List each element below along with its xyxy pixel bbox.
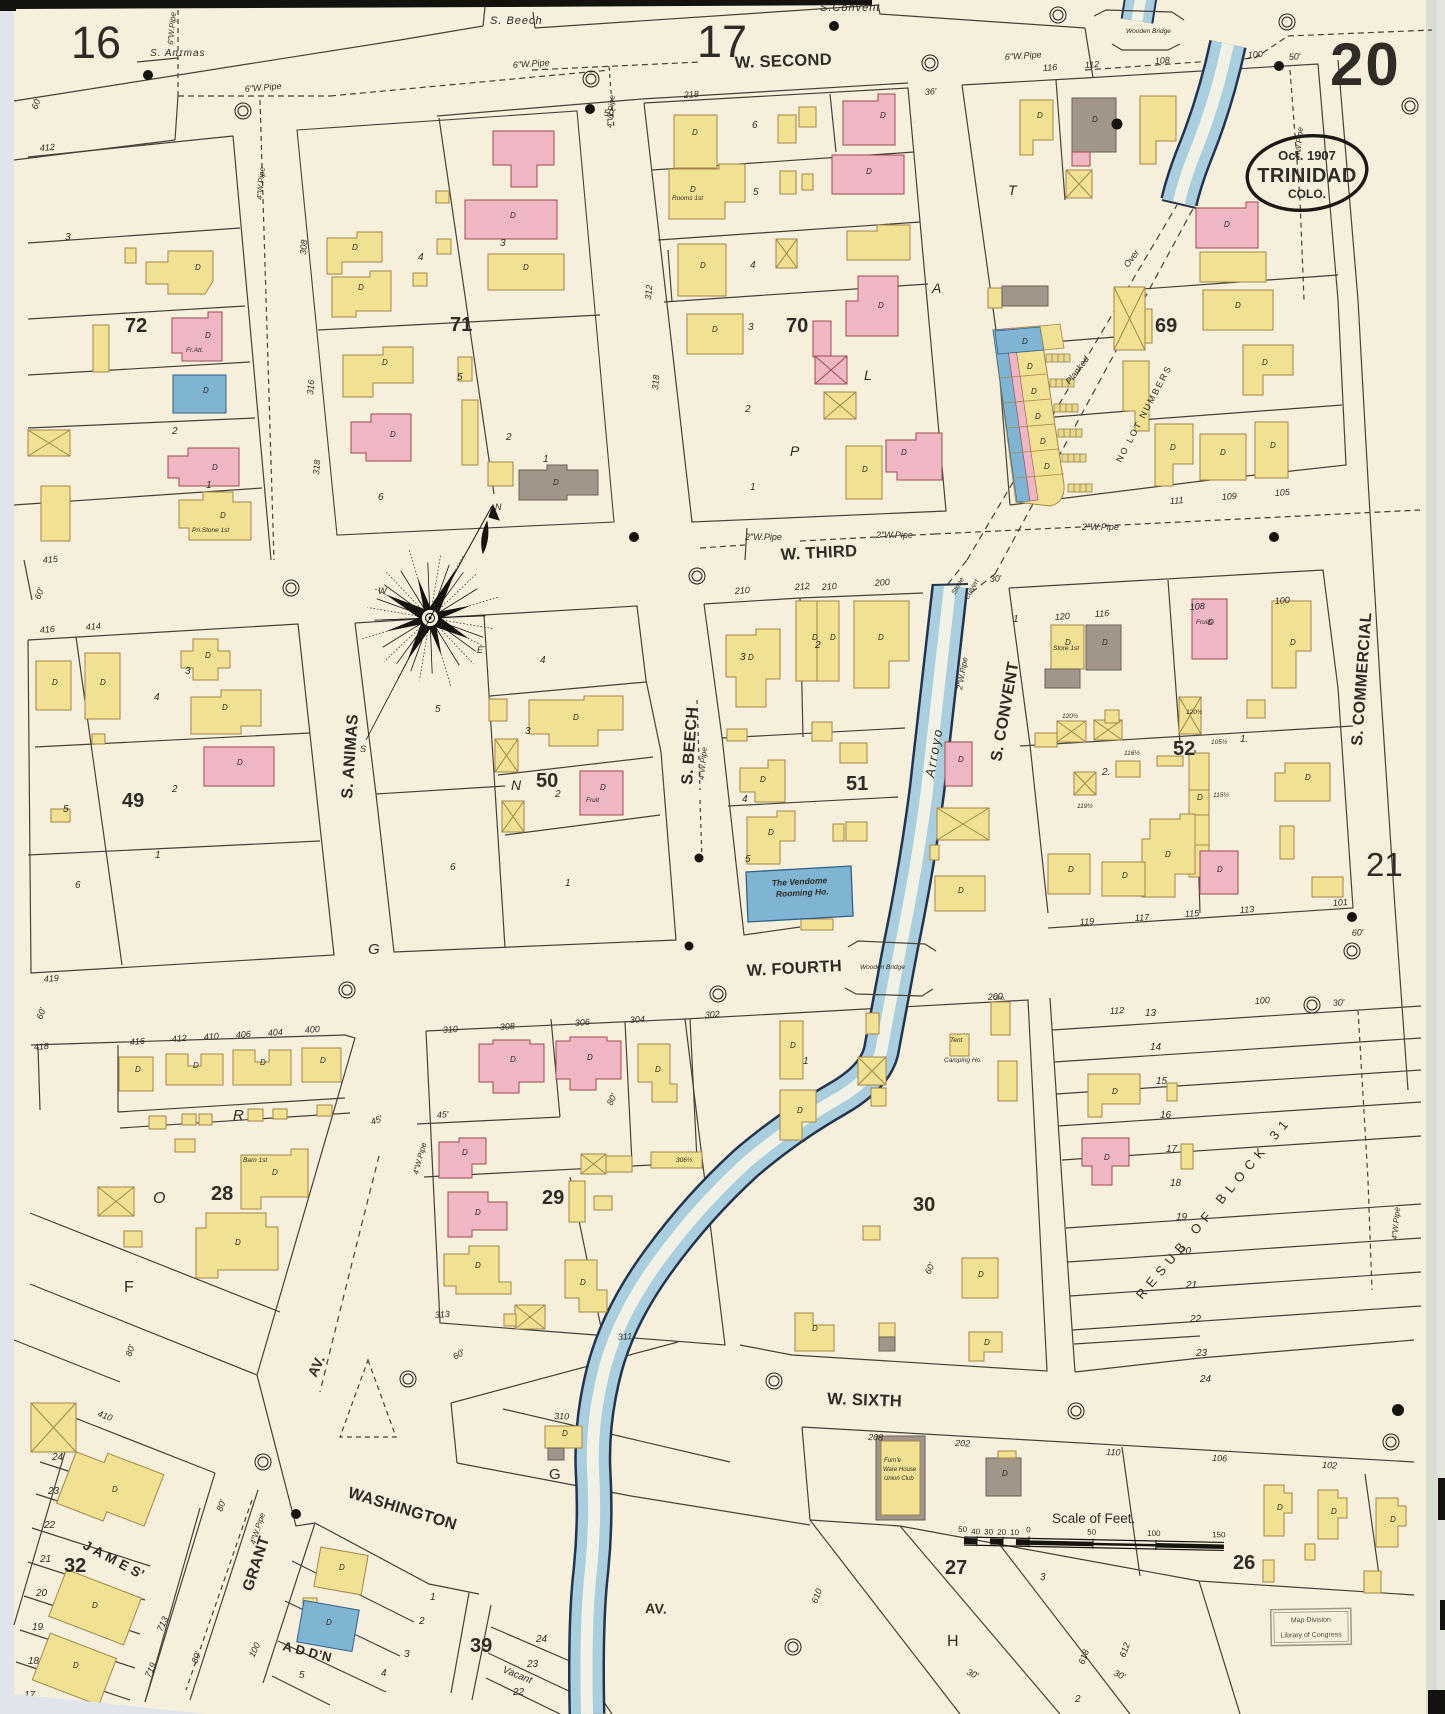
svg-text:71: 71 (450, 314, 472, 336)
svg-text:416: 416 (39, 624, 55, 635)
svg-text:412: 412 (171, 1033, 187, 1044)
svg-text:AV.: AV. (645, 1600, 667, 1617)
svg-text:105½: 105½ (1211, 738, 1228, 746)
svg-text:1: 1 (543, 454, 549, 465)
svg-text:D: D (573, 713, 579, 722)
svg-text:16: 16 (71, 17, 121, 68)
svg-text:D: D (1270, 441, 1276, 450)
svg-text:D: D (1290, 638, 1296, 647)
svg-text:2: 2 (418, 1616, 425, 1627)
svg-text:Wooden Bridge: Wooden Bridge (1126, 28, 1171, 35)
svg-text:D: D (112, 1485, 118, 1494)
svg-text:D: D (52, 678, 58, 687)
svg-text:200: 200 (873, 577, 890, 588)
svg-text:2: 2 (744, 404, 751, 415)
svg-text:4: 4 (418, 252, 424, 263)
svg-text:D: D (1092, 115, 1098, 124)
svg-text:32: 32 (64, 1555, 86, 1577)
svg-text:D: D (1068, 865, 1074, 874)
svg-text:19: 19 (1176, 1212, 1188, 1223)
svg-text:24: 24 (1199, 1374, 1212, 1385)
svg-text:72: 72 (125, 315, 147, 337)
svg-text:D: D (326, 1618, 332, 1627)
svg-text:1: 1 (155, 850, 161, 861)
svg-text:Scale of Feet.: Scale of Feet. (1052, 1511, 1135, 1526)
svg-text:D: D (984, 1338, 990, 1347)
svg-text:210: 210 (820, 581, 837, 592)
svg-text:D: D (100, 678, 106, 687)
svg-text:TRINIDAD: TRINIDAD (1257, 165, 1357, 187)
svg-text:116½: 116½ (1124, 749, 1140, 757)
svg-text:22: 22 (1189, 1314, 1202, 1325)
svg-text:4: 4 (154, 692, 160, 703)
svg-text:D: D (475, 1208, 481, 1217)
svg-text:Fr.Att.: Fr.Att. (186, 347, 204, 354)
svg-text:108: 108 (1189, 601, 1205, 612)
svg-text:D: D (205, 331, 211, 340)
svg-text:208: 208 (867, 1432, 883, 1443)
svg-text:1: 1 (430, 1592, 436, 1603)
svg-text:308: 308 (298, 239, 309, 255)
svg-text:6: 6 (378, 492, 384, 503)
svg-text:D: D (1165, 850, 1171, 859)
svg-text:23: 23 (1195, 1348, 1208, 1359)
svg-text:Barn 1st: Barn 1st (243, 1157, 268, 1164)
svg-text:N: N (495, 502, 502, 512)
svg-text:D: D (812, 633, 818, 642)
svg-text:Map Division: Map Division (1291, 1617, 1331, 1625)
svg-text:Furn’e: Furn’e (884, 1458, 902, 1464)
svg-text:20: 20 (1330, 31, 1401, 98)
svg-text:115½: 115½ (1213, 791, 1229, 799)
svg-text:D: D (1044, 462, 1050, 471)
svg-text:304: 304 (629, 1014, 645, 1025)
svg-text:18: 18 (28, 1656, 40, 1667)
svg-text:D: D (700, 261, 706, 270)
svg-text:112: 112 (1109, 1005, 1124, 1016)
svg-text:D: D (382, 358, 388, 367)
svg-text:F: F (124, 1279, 134, 1296)
svg-text:D: D (812, 1324, 818, 1333)
svg-text:Library of Congress: Library of Congress (1281, 1631, 1343, 1639)
svg-text:1: 1 (1013, 614, 1019, 625)
svg-text:70: 70 (786, 315, 808, 337)
svg-text:D: D (1331, 1507, 1337, 1516)
svg-text:116: 116 (1042, 62, 1057, 73)
svg-text:120½: 120½ (1062, 712, 1079, 720)
svg-text:5: 5 (745, 854, 751, 865)
svg-text:D: D (220, 511, 226, 520)
svg-text:D: D (878, 301, 884, 310)
svg-text:36′: 36′ (924, 86, 937, 97)
svg-text:D: D (1235, 301, 1241, 310)
svg-text:D: D (1027, 362, 1033, 371)
svg-text:50: 50 (958, 1525, 968, 1534)
svg-text:306: 306 (574, 1017, 590, 1028)
svg-text:3: 3 (748, 322, 754, 333)
svg-text:L: L (864, 367, 872, 383)
svg-text:H: H (947, 1633, 959, 1650)
svg-text:17: 17 (1166, 1144, 1178, 1155)
svg-text:R: R (233, 1107, 244, 1124)
svg-text:120½: 120½ (1186, 708, 1203, 716)
svg-text:D: D (830, 633, 836, 642)
svg-text:D: D (1065, 638, 1071, 647)
svg-text:116: 116 (1094, 608, 1109, 619)
svg-text:D: D (760, 775, 766, 784)
svg-text:101: 101 (1332, 897, 1348, 908)
svg-text:2″W.Pipe: 2″W.Pipe (1081, 522, 1119, 532)
svg-text:21: 21 (1185, 1280, 1197, 1291)
svg-text:D: D (1122, 871, 1128, 880)
svg-text:316: 316 (305, 379, 316, 395)
svg-text:1: 1 (750, 482, 756, 493)
svg-text:N: N (511, 777, 522, 793)
svg-text:419: 419 (43, 973, 59, 984)
svg-text:49: 49 (122, 790, 144, 812)
svg-text:106: 106 (1212, 1453, 1227, 1464)
svg-text:Gro.: Gro. (993, 995, 1006, 1002)
svg-text:23: 23 (526, 1659, 539, 1670)
svg-text:D: D (260, 1058, 266, 1067)
svg-text:50: 50 (1087, 1528, 1097, 1537)
svg-text:5: 5 (753, 187, 759, 198)
svg-text:S. Beech: S. Beech (490, 15, 543, 27)
svg-text:E: E (477, 645, 484, 655)
svg-text:2: 2 (554, 789, 561, 800)
svg-text:115: 115 (1184, 908, 1200, 919)
svg-text:2″W.Pipe: 2″W.Pipe (875, 530, 913, 540)
svg-text:119: 119 (1079, 916, 1094, 927)
svg-text:28: 28 (211, 1183, 233, 1205)
svg-text:40: 40 (971, 1527, 981, 1536)
svg-text:D: D (1112, 1087, 1118, 1096)
svg-text:51: 51 (846, 773, 868, 795)
svg-text:D: D (195, 263, 201, 272)
svg-text:1: 1 (206, 480, 212, 491)
svg-text:100: 100 (1247, 49, 1263, 60)
svg-text:102: 102 (1322, 1460, 1337, 1471)
svg-text:24: 24 (51, 1452, 64, 1463)
svg-text:3: 3 (404, 1649, 410, 1660)
svg-text:D: D (1022, 337, 1028, 346)
svg-text:400: 400 (304, 1024, 320, 1035)
svg-text:D: D (878, 633, 884, 642)
svg-text:3: 3 (525, 726, 531, 737)
svg-text:21: 21 (39, 1554, 51, 1565)
svg-text:21: 21 (1366, 846, 1403, 883)
svg-text:Tent: Tent (950, 1037, 964, 1044)
svg-text:D: D (212, 463, 218, 472)
svg-text:310: 310 (442, 1024, 458, 1035)
svg-text:D: D (1208, 618, 1214, 627)
svg-text:D: D (203, 386, 209, 395)
svg-text:202: 202 (954, 1438, 970, 1449)
svg-text:0: 0 (1026, 1525, 1031, 1534)
svg-text:D: D (510, 211, 516, 220)
svg-text:110: 110 (1106, 1447, 1121, 1457)
svg-text:20: 20 (997, 1528, 1007, 1537)
svg-text:312: 312 (643, 284, 654, 300)
svg-text:D: D (1002, 1469, 1008, 1478)
svg-text:D: D (690, 185, 696, 194)
svg-text:D: D (580, 1278, 586, 1287)
svg-text:6: 6 (752, 120, 758, 131)
svg-text:26: 26 (1233, 1552, 1255, 1574)
svg-text:5: 5 (435, 704, 441, 715)
svg-text:100: 100 (1254, 995, 1270, 1006)
svg-text:16: 16 (1160, 1110, 1172, 1121)
svg-text:D: D (1197, 793, 1203, 802)
svg-text:15: 15 (1156, 1076, 1168, 1087)
svg-text:20: 20 (35, 1588, 48, 1599)
svg-text:45′: 45′ (436, 1109, 449, 1120)
svg-text:D: D (600, 783, 606, 792)
svg-text:52: 52 (1173, 738, 1195, 760)
svg-text:308: 308 (499, 1021, 515, 1032)
svg-text:D: D (339, 1563, 345, 1572)
svg-text:2″W.Pipe: 2″W.Pipe (744, 532, 782, 542)
svg-text:4: 4 (540, 655, 546, 666)
svg-text:D: D (862, 465, 868, 474)
svg-text:150: 150 (1212, 1530, 1226, 1539)
svg-text:D: D (748, 653, 754, 662)
svg-text:D: D (510, 1055, 516, 1064)
svg-text:S.Convent: S.Convent (820, 2, 880, 14)
svg-text:310: 310 (554, 1411, 569, 1422)
svg-text:313: 313 (434, 1309, 450, 1320)
svg-text:5: 5 (299, 1670, 305, 1681)
svg-text:3: 3 (740, 652, 746, 663)
svg-text:416: 416 (129, 1036, 145, 1047)
svg-text:1: 1 (565, 878, 571, 889)
svg-text:D: D (1220, 448, 1226, 457)
svg-text:T: T (1008, 182, 1018, 198)
svg-text:19: 19 (32, 1622, 44, 1633)
svg-text:D: D (73, 1661, 79, 1670)
svg-text:4: 4 (750, 260, 756, 271)
svg-text:30: 30 (984, 1527, 994, 1536)
svg-text:D: D (712, 325, 718, 334)
svg-text:2: 2 (505, 432, 512, 443)
svg-text:111: 111 (1169, 495, 1183, 506)
svg-text:418: 418 (33, 1041, 49, 1052)
svg-text:D: D (655, 1065, 661, 1074)
svg-text:1.: 1. (1240, 734, 1248, 745)
svg-text:3: 3 (500, 238, 506, 249)
svg-text:30: 30 (913, 1194, 935, 1216)
svg-text:D: D (797, 1106, 803, 1115)
svg-text:Fruit: Fruit (586, 797, 600, 804)
svg-text:22: 22 (512, 1687, 525, 1698)
svg-text:D: D (523, 263, 529, 272)
svg-text:D: D (92, 1601, 98, 1610)
svg-text:Wooden Bridge: Wooden Bridge (860, 964, 905, 971)
svg-text:Union Club: Union Club (884, 1476, 914, 1482)
svg-text:D: D (768, 828, 774, 837)
svg-text:COLO.: COLO. (1288, 187, 1326, 201)
svg-text:D: D (235, 1238, 241, 1247)
svg-text:G: G (549, 1466, 561, 1483)
svg-text:24: 24 (535, 1634, 548, 1645)
svg-text:415: 415 (42, 554, 59, 565)
svg-text:G: G (368, 941, 380, 958)
svg-text:D: D (390, 430, 396, 439)
svg-text:D: D (320, 1056, 326, 1065)
svg-text:D: D (958, 886, 964, 895)
svg-text:10: 10 (1010, 1528, 1020, 1537)
svg-text:D: D (1035, 412, 1041, 421)
svg-text:23: 23 (47, 1486, 60, 1497)
svg-text:20: 20 (1179, 1246, 1192, 1257)
svg-text:108: 108 (1154, 55, 1170, 66)
svg-text:1: 1 (803, 1056, 809, 1067)
svg-text:13: 13 (1145, 1008, 1157, 1019)
svg-text:D: D (1262, 358, 1268, 367)
svg-text:109: 109 (1221, 491, 1237, 502)
svg-text:D: D (553, 478, 559, 487)
svg-text:302: 302 (704, 1009, 720, 1020)
svg-text:6: 6 (75, 880, 81, 891)
svg-text:50′: 50′ (603, 107, 616, 118)
svg-text:D: D (237, 758, 243, 767)
svg-text:39: 39 (470, 1635, 492, 1657)
svg-text:D: D (880, 111, 886, 120)
svg-text:Camping Ho.: Camping Ho. (944, 1057, 982, 1064)
svg-text:6: 6 (450, 862, 456, 873)
svg-text:2.: 2. (1101, 767, 1110, 778)
svg-text:D: D (866, 167, 872, 176)
svg-text:414: 414 (85, 621, 101, 632)
svg-text:D: D (1305, 773, 1311, 782)
svg-text:105: 105 (1274, 487, 1291, 498)
svg-text:212: 212 (793, 581, 810, 592)
svg-text:D: D (475, 1261, 481, 1270)
svg-text:30′: 30′ (989, 573, 1002, 584)
svg-text:W. SIXTH: W. SIXTH (827, 1390, 902, 1411)
svg-text:D: D (193, 1061, 199, 1070)
svg-text:S. Anɪmas: S. Anɪmas (150, 48, 206, 59)
svg-text:100: 100 (1147, 1529, 1161, 1538)
svg-text:120: 120 (1054, 611, 1070, 622)
svg-text:O: O (153, 1190, 165, 1207)
svg-text:D: D (1170, 443, 1176, 452)
svg-text:27: 27 (945, 1557, 967, 1579)
svg-text:P: P (790, 443, 800, 459)
svg-text:60′: 60′ (1351, 927, 1364, 938)
svg-text:D: D (1104, 1153, 1110, 1162)
svg-text:D: D (1031, 387, 1037, 396)
svg-text:D: D (1040, 437, 1046, 446)
svg-text:Oct. 1907: Oct. 1907 (1278, 148, 1336, 163)
svg-text:117: 117 (1134, 912, 1150, 923)
svg-text:D: D (1390, 1515, 1396, 1524)
svg-text:30′: 30′ (1332, 997, 1345, 1008)
svg-text:410: 410 (203, 1031, 219, 1042)
svg-text:D: D (587, 1053, 593, 1062)
svg-text:D: D (205, 651, 211, 660)
svg-text:69: 69 (1155, 315, 1177, 337)
svg-text:306½: 306½ (676, 1156, 693, 1164)
svg-text:29: 29 (542, 1187, 564, 1209)
svg-text:3: 3 (1040, 1572, 1046, 1583)
svg-text:D: D (958, 755, 964, 764)
svg-text:D: D (1277, 1503, 1283, 1512)
svg-text:318: 318 (311, 459, 322, 475)
svg-text:2: 2 (1074, 1694, 1081, 1705)
svg-text:D: D (1037, 111, 1043, 120)
svg-text:210: 210 (733, 585, 750, 596)
svg-text:D: D (358, 283, 364, 292)
svg-text:112: 112 (1084, 59, 1099, 70)
svg-text:14: 14 (1150, 1042, 1162, 1053)
svg-text:119½: 119½ (1077, 802, 1093, 810)
svg-text:100: 100 (1274, 595, 1290, 606)
svg-text:D: D (1224, 220, 1230, 229)
svg-text:50′: 50′ (1288, 51, 1301, 62)
svg-text:D: D (135, 1065, 141, 1074)
svg-text:Rooms 1st: Rooms 1st (672, 195, 704, 202)
svg-text:4: 4 (381, 1668, 387, 1679)
svg-text:D: D (272, 1168, 278, 1177)
svg-text:D: D (352, 243, 358, 252)
svg-text:2: 2 (171, 784, 178, 795)
svg-text:3: 3 (65, 232, 71, 243)
svg-text:D: D (790, 1041, 796, 1050)
svg-text:D: D (1102, 638, 1108, 647)
svg-text:D: D (562, 1429, 568, 1438)
svg-text:3: 3 (185, 666, 191, 677)
svg-text:D: D (901, 448, 907, 457)
svg-text:311: 311 (617, 1331, 632, 1342)
svg-text:18: 18 (1170, 1178, 1182, 1189)
svg-text:D: D (692, 128, 698, 137)
svg-text:Ware House: Ware House (883, 1467, 917, 1473)
svg-text:404: 404 (267, 1027, 283, 1038)
svg-text:406: 406 (235, 1029, 251, 1040)
svg-text:113: 113 (1239, 904, 1254, 915)
svg-text:W. SECOND: W. SECOND (735, 51, 833, 72)
svg-text:D: D (1217, 865, 1223, 874)
svg-text:318: 318 (650, 374, 661, 390)
svg-text:Pri.Stone 1st: Pri.Stone 1st (192, 527, 230, 534)
svg-text:2: 2 (171, 426, 178, 437)
svg-text:22: 22 (43, 1520, 56, 1531)
svg-text:5: 5 (63, 804, 69, 815)
svg-text:412: 412 (39, 142, 55, 153)
svg-text:4: 4 (742, 794, 748, 805)
svg-text:S: S (360, 744, 366, 754)
svg-text:218: 218 (682, 89, 699, 100)
svg-text:D: D (222, 703, 228, 712)
svg-text:5: 5 (457, 372, 463, 383)
svg-text:A: A (931, 280, 941, 296)
svg-text:D: D (462, 1148, 468, 1157)
svg-text:D: D (978, 1270, 984, 1279)
